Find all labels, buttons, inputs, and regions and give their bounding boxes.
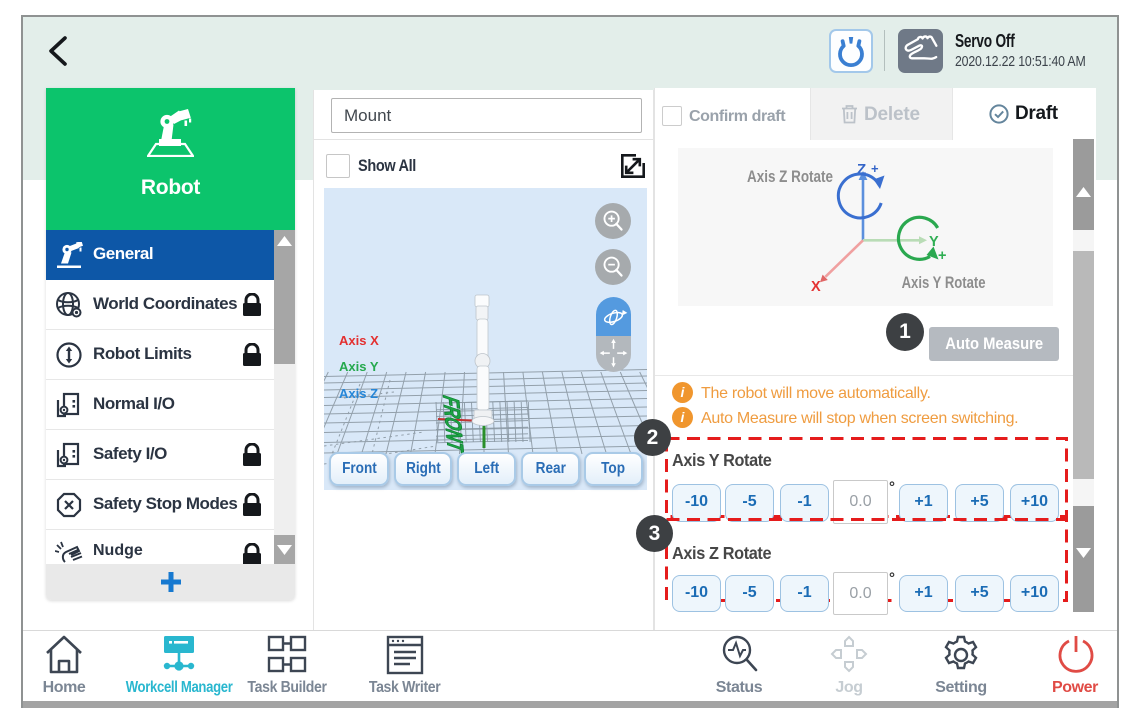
svg-text:Axis Z Rotate: Axis Z Rotate (747, 167, 833, 186)
svg-text:+: + (938, 248, 946, 264)
svg-text:X: X (811, 279, 821, 295)
svg-text:Axis Y Rotate: Axis Y Rotate (902, 273, 986, 292)
svg-text:+: + (871, 161, 879, 176)
